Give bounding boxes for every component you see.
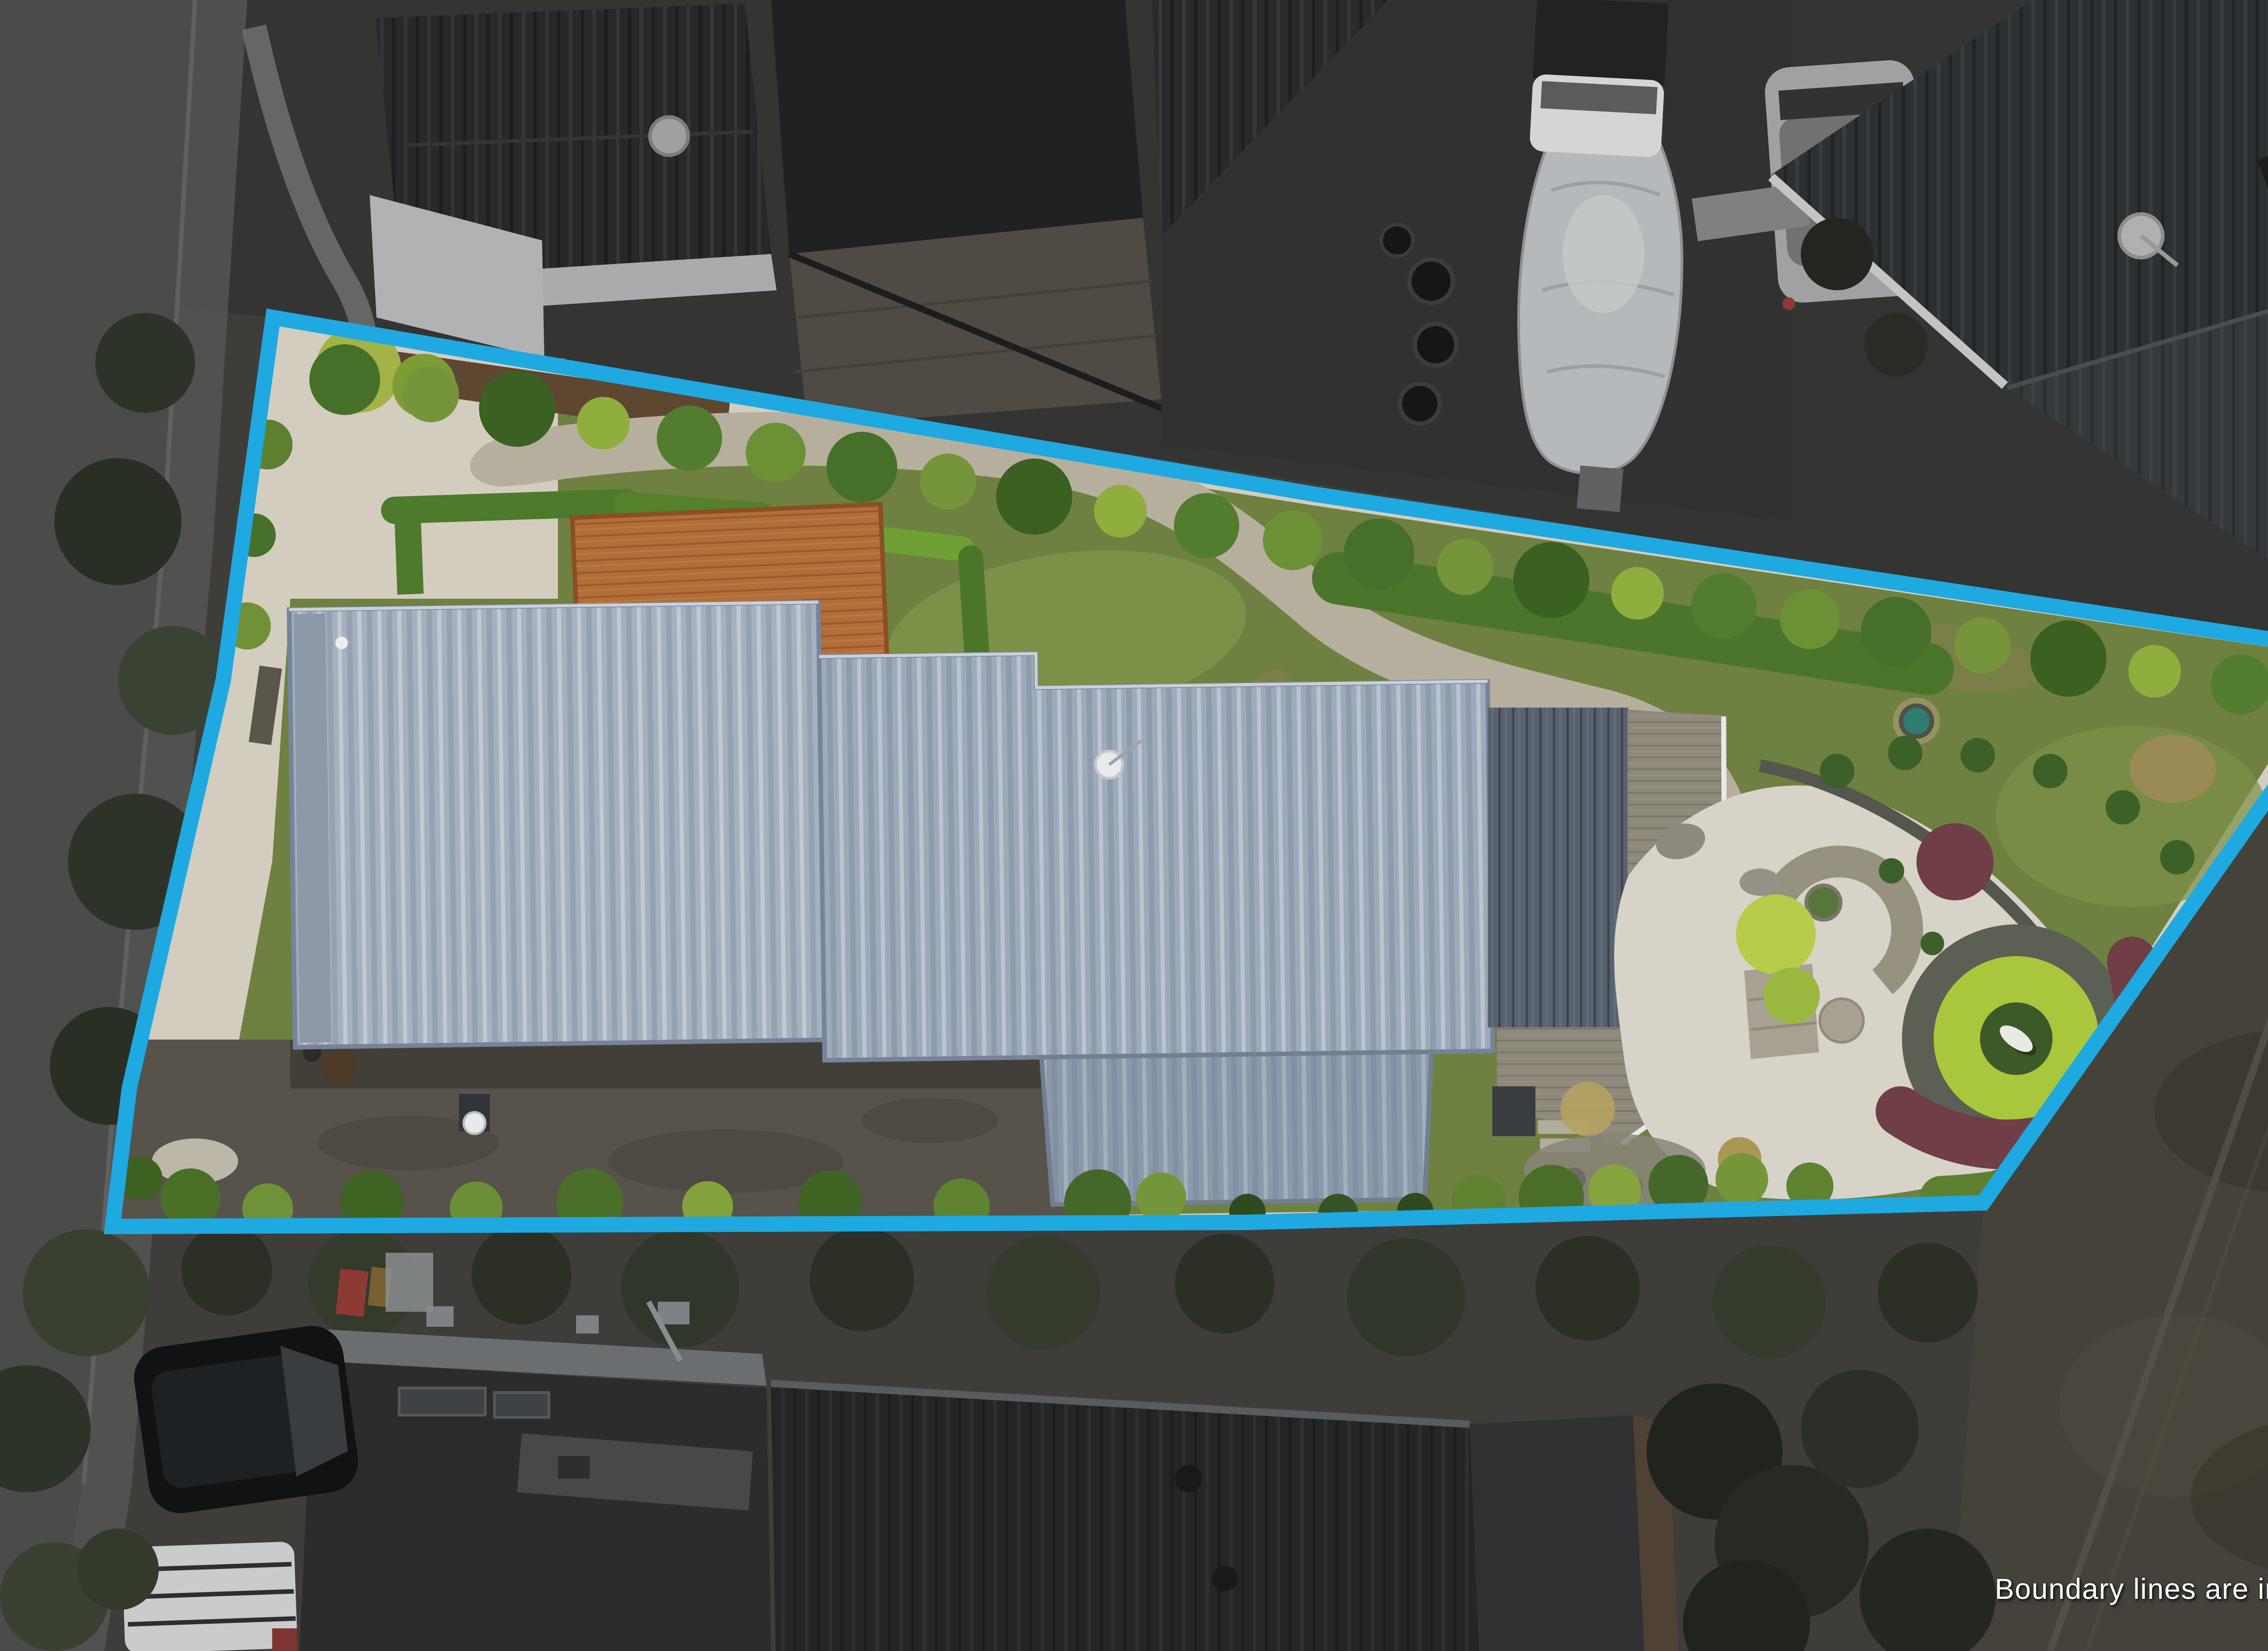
black-suv: [130, 1322, 362, 1517]
lime-shrub: [1736, 894, 1816, 974]
trailer-box: [386, 1253, 433, 1312]
grass-tuft: [1560, 1082, 1615, 1136]
aerial-photo: Boundary lines are indicative only: [0, 0, 2268, 1651]
vent-cap: [464, 1112, 485, 1134]
round-paver: [1820, 999, 1863, 1042]
satellite-dish-icon: [650, 117, 688, 155]
house-3: [1470, 1415, 1644, 1651]
roof: [771, 0, 1143, 254]
red-bin: [336, 1269, 368, 1317]
burgundy-shrub: [1916, 823, 1994, 900]
planter: [1806, 885, 1841, 920]
bare-patch: [2130, 735, 2216, 803]
outboard-motor: [1577, 465, 1623, 512]
roof-parapet: [293, 614, 331, 1043]
leaf-pile: [321, 1048, 357, 1084]
timber-deck: [789, 218, 1161, 426]
caption: Boundary lines are indicative only: [1995, 1573, 2268, 1605]
red-car: [272, 1628, 297, 1651]
pickup-truck: [1529, 0, 1668, 158]
outdoor-couch: [1492, 1086, 1535, 1136]
